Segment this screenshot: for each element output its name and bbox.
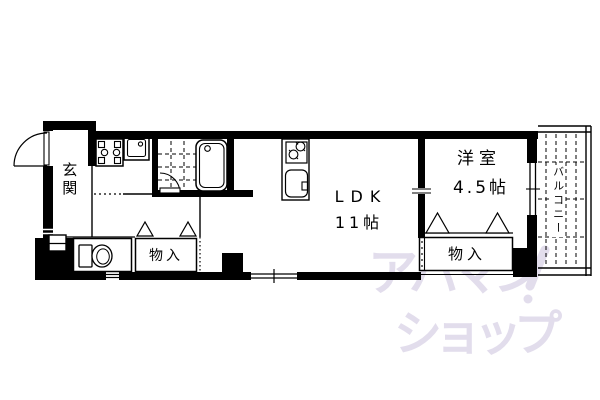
room-label-storage-left: 物入 — [136, 248, 196, 264]
window-marker — [251, 269, 297, 283]
stove-icon — [286, 142, 307, 163]
washbasin-icon — [124, 136, 149, 160]
entrance-door-arc-icon — [14, 132, 49, 166]
toilet-window-marker — [106, 272, 119, 280]
room-label-ldk: LDK — [332, 188, 390, 206]
pipe-space-box — [49, 235, 66, 251]
kitchen-sink-icon — [286, 170, 308, 197]
bathtub-icon — [196, 140, 227, 191]
bath-door-arc-icon — [160, 173, 180, 193]
washing-machine-pan-icon — [96, 139, 123, 166]
room-label-genkan: 玄関 — [60, 162, 77, 198]
balcony-window-marker — [526, 163, 540, 215]
toilet-icon — [79, 245, 112, 267]
room-size-ldk: 11帖 — [328, 214, 390, 232]
room-label-western-room: 洋室 — [450, 150, 508, 170]
room-label-balcony: バルコニー — [551, 165, 564, 237]
room-door-marker — [412, 188, 431, 194]
room-size-western-room: 4.5帖 — [444, 179, 518, 199]
kitchen-unit — [282, 139, 309, 200]
room-label-storage-right: 物入 — [437, 246, 497, 263]
floorplan-canvas: アパマン ショップ — [0, 0, 600, 400]
floorplan-drawing — [0, 0, 600, 400]
